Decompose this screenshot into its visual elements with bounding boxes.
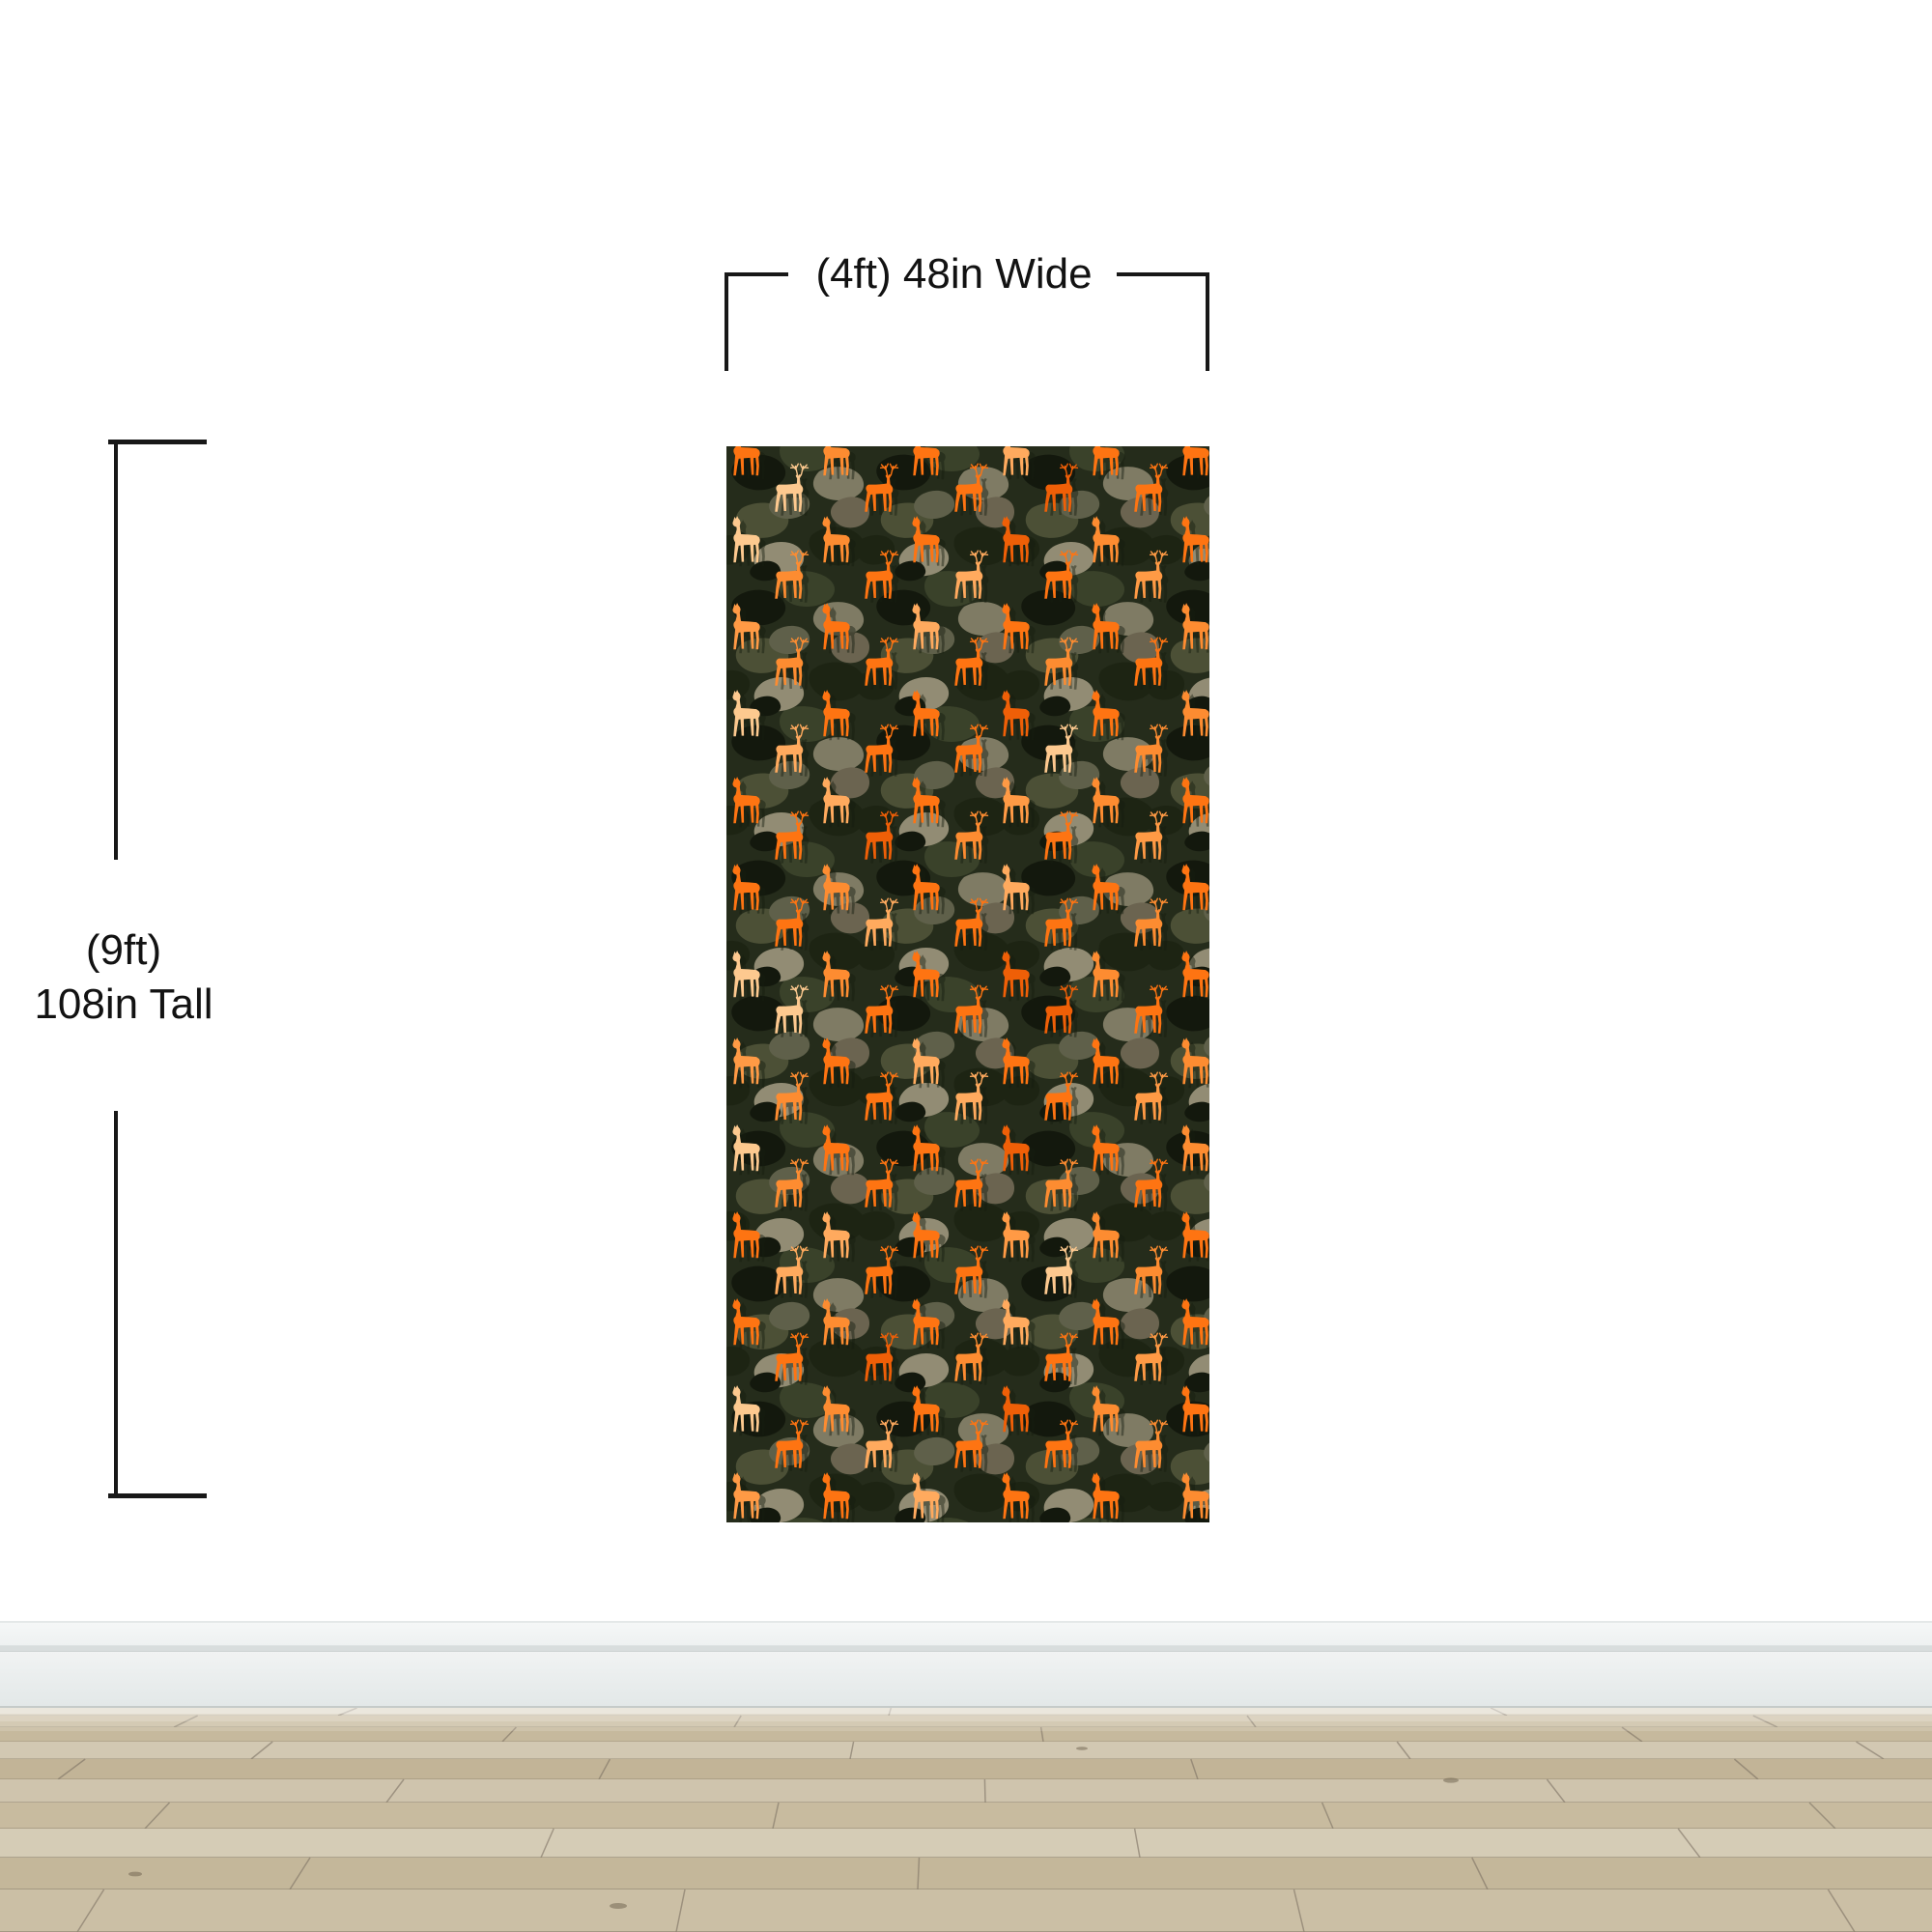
height-dim-line-top <box>114 440 118 860</box>
height-dim-feet-line: (9ft) <box>21 923 226 978</box>
product-mockup-scene: (4ft) 48in Wide (9ft) 108in Tall <box>0 0 1932 1932</box>
width-dim-line-left <box>724 272 788 276</box>
wood-floor <box>0 1708 1932 1932</box>
floor-planks-layer <box>0 1708 1932 1932</box>
width-dim-line-right <box>1117 272 1209 276</box>
height-dim-end-tick-bottom <box>108 1493 207 1498</box>
height-dim-inches-line: 108in Tall <box>21 978 226 1032</box>
height-dim-end-tick-top <box>108 440 207 444</box>
width-dim-end-tick-left <box>724 272 728 371</box>
baseboard <box>0 1621 1932 1708</box>
height-dimension-label: (9ft) 108in Tall <box>21 923 226 1032</box>
width-dimension-label: (4ft) 48in Wide <box>787 247 1121 301</box>
baseboard-face <box>0 1652 1932 1708</box>
width-dim-end-tick-right <box>1206 272 1209 371</box>
wallpaper-panel <box>726 446 1209 1522</box>
baseboard-cap-molding <box>0 1621 1932 1646</box>
height-dim-line-bottom <box>114 1111 118 1496</box>
